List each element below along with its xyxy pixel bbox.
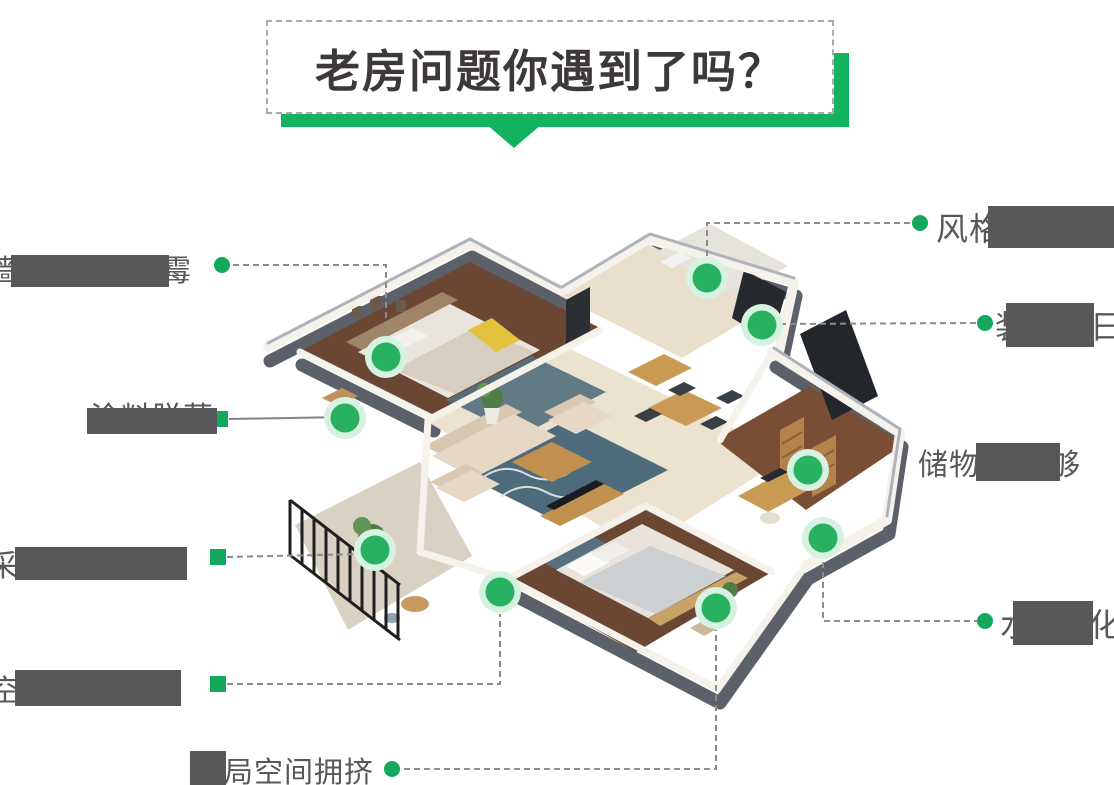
label-storage-redaction [976,443,1060,481]
connector-decor-old [780,323,976,324]
marker-living-wall [479,571,521,613]
marker-bedroom2-bed [695,587,737,629]
label-style-old: 风格 [936,204,1114,250]
marker-bathroom [741,304,783,346]
dot-space-waste [210,676,226,692]
connector-layout [404,630,716,769]
label-decor-old-text-after: 日 [1090,302,1114,348]
dot-aging [977,613,993,629]
marker-balcony [354,529,396,571]
label-style-old-redaction [988,206,1114,248]
marker-bookshelf [787,449,829,491]
infographic-old-house-problems: 老房问题你遇到了吗？ [0,0,1114,785]
marker-hallway [686,257,728,299]
label-storage-text-after: 够 [1050,440,1081,484]
label-paint-peel: 涂料脱落 [90,393,214,437]
label-decor-old: 装 日 [995,302,1114,348]
label-space-waste-redaction [15,670,181,706]
label-layout-redaction [190,751,226,785]
marker-bedroom1-wall [365,336,407,378]
label-wall-mold-redaction [11,255,169,287]
label-wall-mold: 墙 霉 [0,246,192,290]
label-aging: 水 化 [1000,600,1114,646]
label-aging-text-after: 化 [1089,600,1114,646]
connector-space-waste [227,614,500,684]
dot-layout [384,761,400,777]
label-paint-peel-redaction [87,408,217,434]
label-daylight-redaction [15,547,187,580]
label-storage: 储物 够 [918,440,1081,484]
marker-bedside [324,397,366,439]
dot-wall-mold [214,257,230,273]
label-aging-redaction [1013,601,1093,645]
label-space-waste: 空 [0,666,181,710]
marker-desk [802,517,844,559]
label-layout: 布局空间拥挤 [194,749,374,785]
label-wall-mold-text-after: 霉 [161,246,192,290]
dot-decor-old [977,315,993,331]
dot-style-old [912,215,928,231]
label-daylight: 采 [0,541,187,585]
label-decor-old-redaction [1006,303,1094,347]
label-storage-text-before: 储物 [918,440,980,484]
dot-daylight [210,549,226,565]
